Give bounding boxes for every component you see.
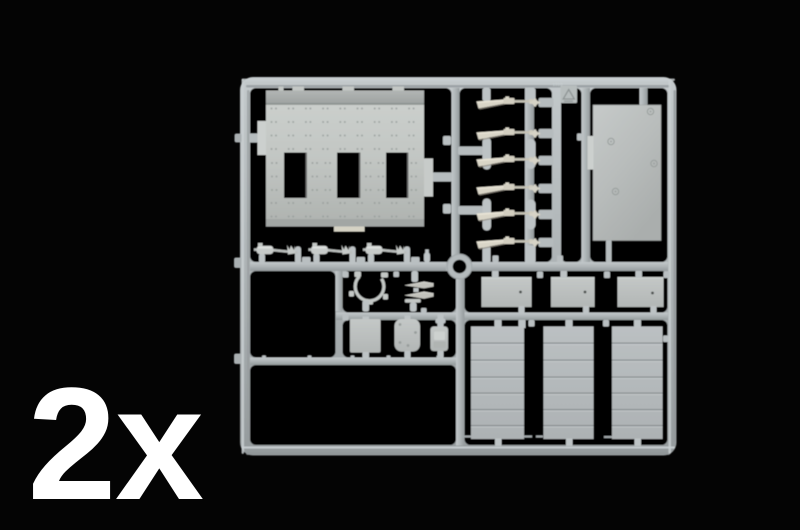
svg-text:2x: 2x: [28, 354, 203, 530]
svg-text:1319: 1319: [553, 82, 564, 87]
